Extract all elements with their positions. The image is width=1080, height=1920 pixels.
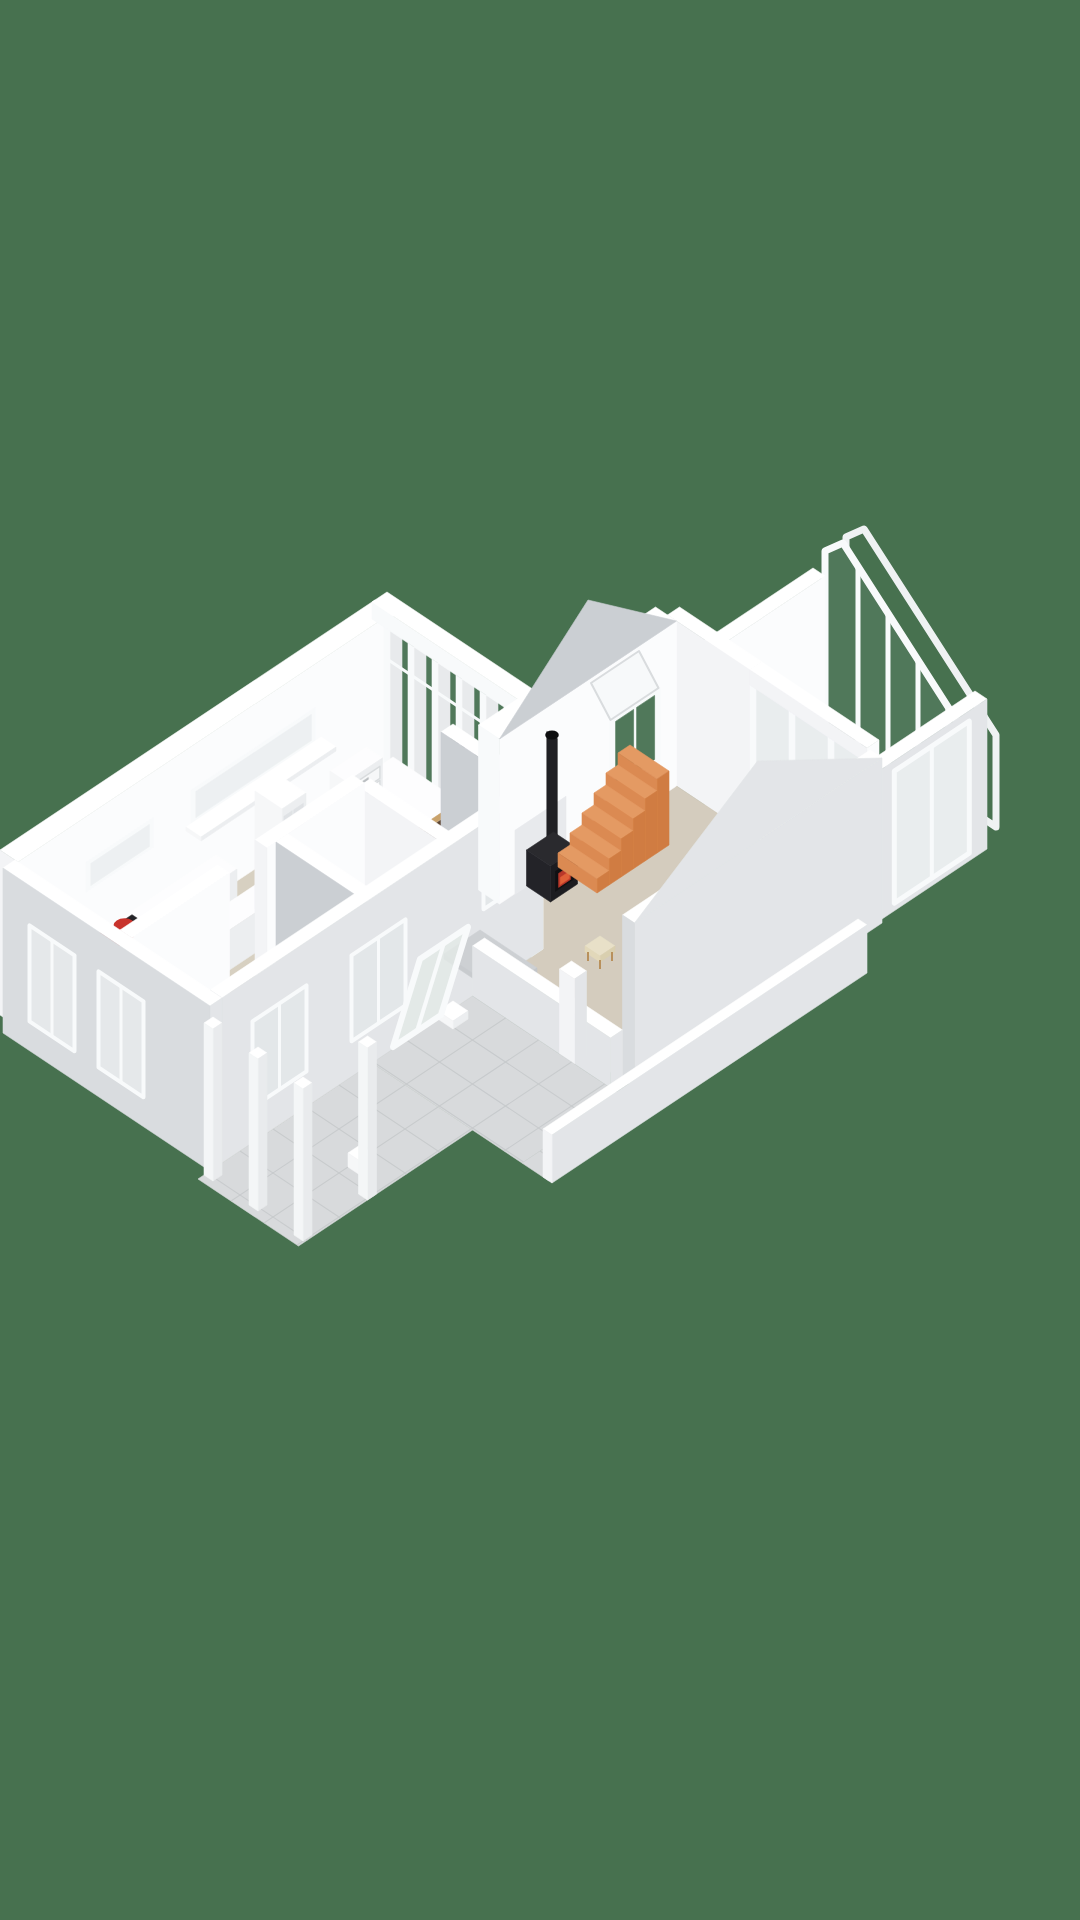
floorplan-3d-render bbox=[0, 0, 1080, 1920]
terrace-post-side bbox=[213, 1023, 222, 1181]
parapet-wall-front bbox=[543, 1129, 552, 1183]
terrace-post-front bbox=[359, 1042, 368, 1200]
stair-step-side bbox=[633, 811, 645, 869]
terrace-post-side bbox=[258, 1053, 267, 1211]
floorplan-stage bbox=[0, 0, 1080, 1920]
stair-step-side bbox=[621, 831, 633, 877]
terrace-post-front bbox=[204, 1023, 213, 1181]
terrace-post-side bbox=[368, 1042, 377, 1200]
terrace-post-front bbox=[294, 1083, 303, 1241]
glass-wall-post bbox=[384, 627, 390, 779]
stair-step-side bbox=[645, 791, 657, 861]
terrace-post-side bbox=[303, 1083, 312, 1241]
terrace-post-front bbox=[249, 1053, 258, 1211]
low-wall-pillar-front bbox=[560, 969, 575, 1064]
stove-pipe-top bbox=[545, 731, 559, 740]
stair-step-side bbox=[657, 771, 669, 853]
living-se-wall-front bbox=[623, 915, 635, 1088]
low-wall-pillar-side bbox=[575, 971, 587, 1064]
chimney-wall-front bbox=[479, 725, 500, 904]
